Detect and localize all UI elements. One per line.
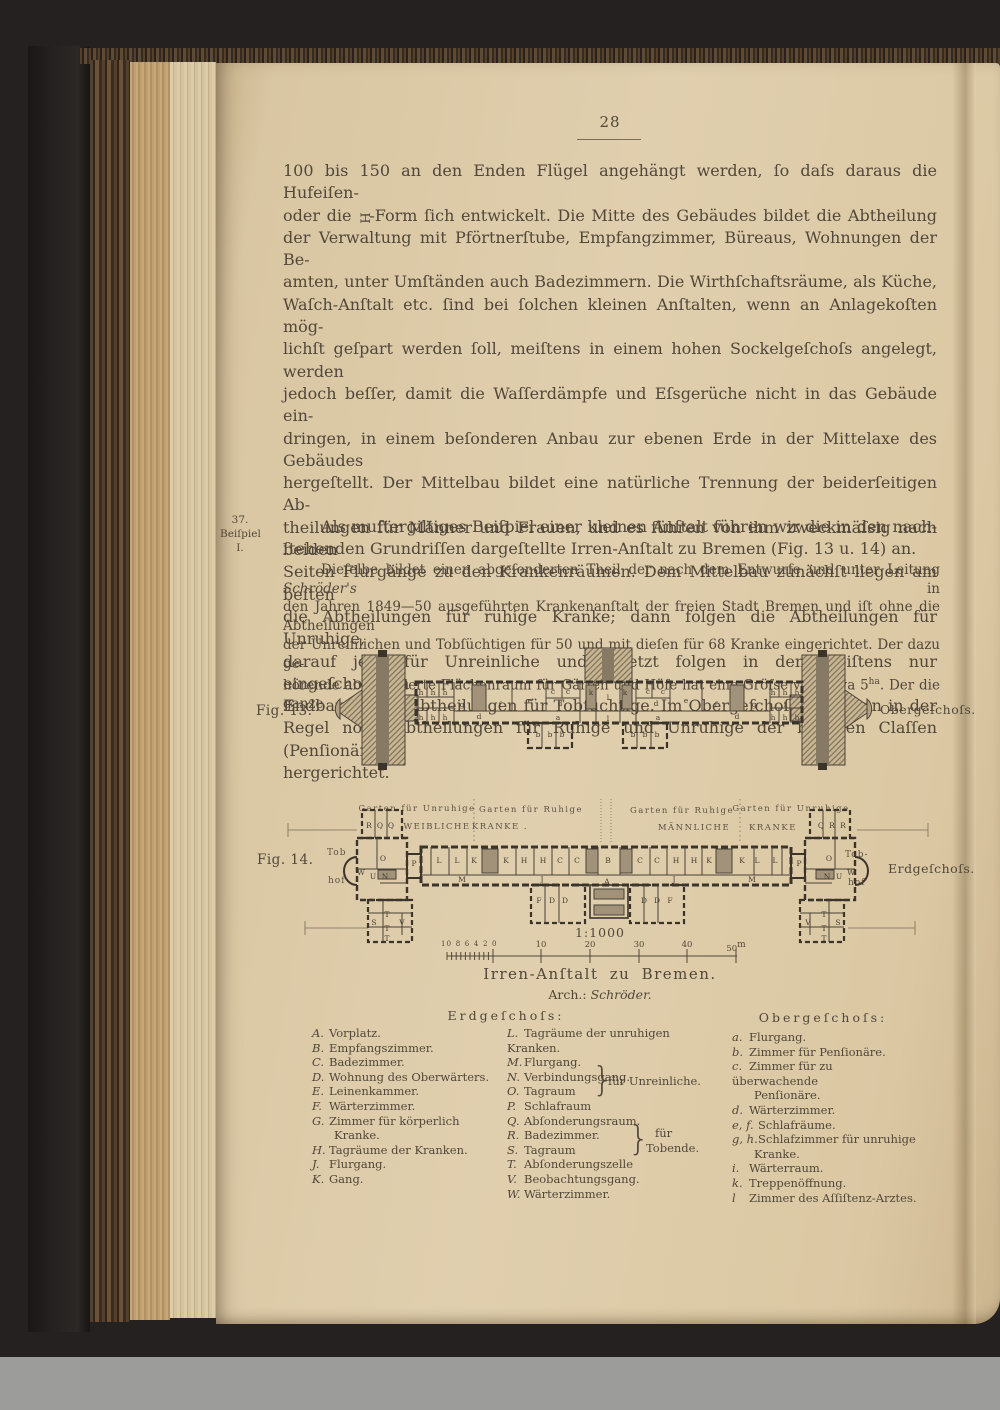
legend-item-text: Schlafräume. <box>758 1118 836 1132</box>
room-letter: K <box>503 856 509 865</box>
legend-item: V.Beobachtungsgang. <box>507 1172 717 1187</box>
book-spine-marbled <box>90 60 130 1322</box>
legend-item-text: Gang. <box>329 1172 363 1186</box>
room-letter: Q <box>818 821 824 830</box>
body-paragraph-2: Als muſtergiltiges Beiſpiel einer kleine… <box>283 516 937 561</box>
room-letter: T <box>384 924 389 933</box>
library-watermark-bar: UNIVERSITÄTS- BIBLIOTHEK PADERBORN <box>0 1357 1000 1410</box>
room-letter: l <box>607 714 610 723</box>
room-letter: R <box>840 821 846 830</box>
room-letter: J <box>539 875 543 884</box>
room-letter: K <box>706 856 712 865</box>
scale-ratio: 1:1000 <box>540 925 660 940</box>
legend-item-text: Wohnung des Oberwärters. <box>329 1070 489 1084</box>
legend-item-text: Leinenkammer. <box>329 1084 419 1098</box>
room-letter: T <box>821 910 826 919</box>
room-letter: R <box>829 821 835 830</box>
page-number-rule <box>577 139 641 140</box>
room-letter: T <box>384 910 389 919</box>
room-letter: W <box>847 868 855 877</box>
room-letter: c <box>566 687 570 696</box>
room-letter: P <box>411 859 416 868</box>
legend-item-key: G. <box>312 1114 329 1129</box>
legend-item: e, f.Schlafräume. <box>732 1118 922 1133</box>
legend-item-key: T. <box>507 1157 524 1172</box>
text-line: hergeſtellt. Der Mittelbau bildet eine n… <box>283 472 937 517</box>
room-letter: f <box>499 700 503 709</box>
room-letter: K <box>471 856 477 865</box>
legend-item-key: d. <box>732 1103 749 1118</box>
room-letter: h <box>419 688 424 697</box>
legend-item-text: Zimmer für Penſionäre. <box>749 1045 886 1059</box>
legend-item-key: e, f. <box>732 1118 758 1133</box>
room-letter: h <box>443 688 448 697</box>
legend-item-text: Treppenöffnung. <box>749 1176 846 1190</box>
room-letter: H <box>521 856 528 865</box>
text-span: in <box>357 581 940 597</box>
room-letter: h <box>771 713 776 722</box>
room-letter: c <box>646 687 650 696</box>
room-letter: V <box>398 918 405 927</box>
room-letter: F <box>667 896 672 905</box>
room-letter: l <box>607 693 610 702</box>
text-span: Dieſelbe bildet einen abgeſonderten Thei… <box>321 562 940 578</box>
legend-item: D.Wohnung des Oberwärters. <box>312 1070 502 1085</box>
room-letter: D <box>641 896 647 905</box>
margin-note-line: I. <box>220 542 260 556</box>
room-letter: h <box>795 713 800 722</box>
room-letter: D <box>562 896 568 905</box>
text-span: -Form ſich entwickelt. Die Mitte des Geb… <box>369 206 937 225</box>
legend-item-text: Badezimmer. <box>329 1055 405 1069</box>
legend-item-text: Badezimmer. <box>524 1128 600 1142</box>
legend-item-key: K. <box>312 1172 329 1187</box>
margin-note-line: 37. <box>220 514 260 528</box>
page-stack-edge <box>170 62 216 1318</box>
legend-item: Q.Abſonderungsraum. <box>507 1114 717 1129</box>
room-letter: T <box>821 924 826 933</box>
room-letter: h <box>771 688 776 697</box>
legend-item: G.Zimmer für körperlich <box>312 1114 502 1129</box>
legend-item: c.Zimmer für zu überwachende <box>732 1059 922 1088</box>
text-line: oder die H-Form ſich entwickelt. Die Mit… <box>283 205 937 227</box>
room-letter: d <box>735 712 740 721</box>
legend-brace-label-tobende: Tobende. <box>646 1141 699 1155</box>
margin-note: 37. Beiſpiel I. <box>220 514 260 555</box>
room-letter: b <box>655 730 660 739</box>
arch-name: Schröder. <box>591 987 652 1002</box>
legend-item-key: S. <box>507 1143 524 1158</box>
legend-item: d.Wärterzimmer. <box>732 1103 922 1118</box>
legend-item: i.Wärterraum. <box>732 1161 922 1176</box>
legend-column-erdgeschoss-1: A.Vorplatz.B.Empfangszimmer.C.Badezimmer… <box>312 1026 502 1187</box>
room-letter: e <box>684 696 689 705</box>
room-letter: B <box>605 856 611 865</box>
room-letter: Q <box>377 821 383 830</box>
room-letter: b <box>536 730 541 739</box>
room-letter: A <box>603 877 610 886</box>
room-letter: L <box>437 856 442 865</box>
legend-item-text: Flurgang. <box>329 1157 386 1171</box>
legend-item: J.Flurgang. <box>312 1157 502 1172</box>
room-letter: f <box>715 700 719 709</box>
room-letter: g <box>460 700 465 709</box>
h-form-symbol: H <box>359 212 369 223</box>
legend-item-key: H. <box>312 1143 329 1158</box>
book-cover-edge <box>28 46 90 1332</box>
room-letter: N <box>382 872 389 881</box>
room-letter: h <box>431 688 436 697</box>
legend-item-text: Schlafraum <box>524 1099 591 1113</box>
room-letter: C <box>557 856 563 865</box>
room-letter: a <box>556 713 561 722</box>
legend-item: lZimmer des Aſſiſtenz-Arztes. <box>732 1191 922 1206</box>
room-letter: K <box>739 856 745 865</box>
margin-note-line: Beiſpiel <box>220 528 260 542</box>
legend-item-text: Abſonderungsraum. <box>524 1114 640 1128</box>
room-letter: d <box>558 699 563 708</box>
legend-item-text: Tagräume der unruhigen Kranken. <box>507 1026 670 1055</box>
legend-item: F.Wärterzimmer. <box>312 1099 502 1114</box>
text-line: Waſch-Anſtalt etc. ſind bei ſolchen klei… <box>283 294 937 339</box>
room-letter: M <box>458 875 466 884</box>
scale-minor-labels: 10 8 6 4 2 0 <box>441 940 498 948</box>
legend-item-key: J. <box>312 1157 329 1172</box>
legend-item-key: B. <box>312 1041 329 1056</box>
text-line: ſtehenden Grundriſſen dargeſtellte Irren… <box>283 538 937 560</box>
legend-item-key: g, h. <box>732 1132 758 1147</box>
legend-item-key: b. <box>732 1045 749 1060</box>
legend-item-text: Empfangszimmer. <box>329 1041 434 1055</box>
legend-item-key: N. <box>507 1070 524 1085</box>
room-letter: S <box>835 918 840 927</box>
room-letter: M <box>748 875 756 884</box>
room-letter: U <box>836 872 842 881</box>
room-letter: h <box>783 688 788 697</box>
room-letter: L <box>755 856 760 865</box>
room-letter: d <box>654 699 659 708</box>
legend-item: W.Wärterzimmer. <box>507 1187 717 1202</box>
legend-item-text-line2: Penſionäre. <box>732 1088 922 1103</box>
room-letter: g <box>752 700 757 709</box>
room-letter: k <box>589 688 594 697</box>
legend-item: K.Gang. <box>312 1172 502 1187</box>
room-letter: Q <box>388 821 394 830</box>
legend-brace-label-fuer: für <box>655 1126 672 1140</box>
text-line: lichſt geſpart werden ſoll, meiſtens in … <box>283 338 937 383</box>
legend-item: L.Tagräume der unruhigen Kranken. <box>507 1026 717 1055</box>
legend-item-text-line2: Kranke. <box>312 1128 502 1143</box>
room-letter: k <box>623 688 628 697</box>
room-letter: C <box>574 856 580 865</box>
legend-item-key: O. <box>507 1084 524 1099</box>
legend-item-text-line2: Kranke. <box>732 1147 922 1162</box>
legend-item: g, h.Schlafzimmer für unruhige <box>732 1132 922 1147</box>
legend-item: E.Leinenkammer. <box>312 1084 502 1099</box>
room-letter: N <box>824 872 831 881</box>
room-letter: D <box>654 896 660 905</box>
legend-item: B.Empfangszimmer. <box>312 1041 502 1056</box>
room-letter: V <box>804 918 811 927</box>
legend-item-text: Schlafzimmer für unruhige <box>758 1132 916 1146</box>
text-line: amten, unter Umſtänden auch Badezimmern.… <box>283 271 937 293</box>
room-letter: h <box>443 713 448 722</box>
room-letter: S <box>371 918 376 927</box>
text-line: 100 bis 150 an den Enden Flügel angehäng… <box>283 160 937 205</box>
figure-caption-architect: Arch.: Schröder. <box>450 987 750 1002</box>
room-letter: L <box>455 856 460 865</box>
room-letter: T <box>821 934 826 943</box>
room-letter: T <box>384 934 389 943</box>
legend-item-key: W. <box>507 1187 524 1202</box>
legend-header-obergeschoss: Obergeſchoſs: <box>738 1010 908 1025</box>
legend-header-erdgeschoss: Erdgeſchoſs: <box>421 1008 591 1023</box>
legend-item-text: Zimmer für körperlich <box>329 1114 460 1128</box>
legend-item: H.Tagräume der Kranken. <box>312 1143 502 1158</box>
text-line: den Jahren 1849—50 ausgeführten Krankena… <box>283 598 940 635</box>
room-letter: h <box>419 713 424 722</box>
text-span: oder die <box>283 206 358 225</box>
legend-item-text: Tagraum <box>524 1084 576 1098</box>
legend-column-erdgeschoss-2: L.Tagräume der unruhigen Kranken.M.Flurg… <box>507 1026 717 1201</box>
room-letter: P <box>796 859 801 868</box>
room-letter: b <box>631 730 636 739</box>
fig13-floorplan: hhhihhhgdfeccdaklklccdaefdgihhhhhhbbbbbb <box>250 645 960 780</box>
room-letter: R <box>366 821 372 830</box>
book-cover-top-edge <box>80 48 1000 64</box>
page-block-edge <box>130 62 170 1320</box>
room-letter: h <box>431 713 436 722</box>
room-letter: b <box>643 730 648 739</box>
legend-item-key: A. <box>312 1026 329 1041</box>
fig14-floorplan: RQQOWUNSTTVTPLLKKHHCCBCCHHKKLLPMJAJMNUQR… <box>250 795 970 945</box>
legend-item-key: k. <box>732 1176 749 1191</box>
legend-item: T.Abſonderungszelle <box>507 1157 717 1172</box>
legend-item-text: Flurgang. <box>749 1030 806 1044</box>
legend-item-key: L. <box>507 1026 524 1041</box>
legend-item-key: E. <box>312 1084 329 1099</box>
legend-item-key: Q. <box>507 1114 524 1129</box>
legend-item-text: Tagräume der Kranken. <box>329 1143 468 1157</box>
room-letter: h <box>783 713 788 722</box>
room-letter: H <box>673 856 680 865</box>
legend-column-obergeschoss: a.Flurgang.b.Zimmer für Penſionäre.c.Zim… <box>732 1030 922 1205</box>
room-letter: L <box>773 856 778 865</box>
scale-bar <box>440 948 745 964</box>
room-letter: H <box>540 856 547 865</box>
legend-item: P.Schlafraum <box>507 1099 717 1114</box>
room-letter: C <box>654 856 660 865</box>
scanned-book-photo: 28 37. Beiſpiel I. 100 bis 150 an den En… <box>0 0 1000 1410</box>
legend-item-text: Abſonderungszelle <box>524 1157 633 1171</box>
room-letter: c <box>551 687 555 696</box>
text-line: Dieſelbe bildet einen abgeſonderten Thei… <box>283 561 940 598</box>
legend-item: C.Badezimmer. <box>312 1055 502 1070</box>
legend-item-text: Wärterzimmer. <box>329 1099 415 1113</box>
legend-item: k.Treppenöffnung. <box>732 1176 922 1191</box>
room-letter: d <box>477 712 482 721</box>
text-line: dringen, in einem beſonderen Anbau zur e… <box>283 428 937 473</box>
room-letter: O <box>826 854 832 863</box>
text-line: Als muſtergiltiges Beiſpiel einer kleine… <box>283 516 937 538</box>
room-letter: b <box>560 730 565 739</box>
legend-item-key: a. <box>732 1030 749 1045</box>
arch-prefix: Arch.: <box>548 987 590 1002</box>
page-number: 28 <box>575 113 645 131</box>
legend-item-key: R. <box>507 1128 524 1143</box>
text-line: jedoch beſſer, damit die Waſſerdämpfe un… <box>283 383 937 428</box>
legend-item: b.Zimmer für Penſionäre. <box>732 1045 922 1060</box>
legend-item-text: Vorplatz. <box>329 1026 381 1040</box>
room-letter: c <box>661 687 665 696</box>
legend-item-key: C. <box>312 1055 329 1070</box>
room-letter: a <box>656 713 661 722</box>
figure-caption-title: Irren-Anſtalt zu Bremen. <box>450 965 750 983</box>
room-letter: C <box>637 856 643 865</box>
room-letter: W <box>357 868 365 877</box>
legend-item-key: D. <box>312 1070 329 1085</box>
legend-item-text: Wärterraum. <box>749 1161 823 1175</box>
legend-item-text: Flurgang. <box>524 1055 581 1069</box>
legend-item-text: Tagraum <box>524 1143 576 1157</box>
legend-item-text: Wärterzimmer. <box>749 1103 835 1117</box>
legend-item-key: M. <box>507 1055 524 1070</box>
legend-item-text: Wärterzimmer. <box>524 1187 610 1201</box>
legend-item: a.Flurgang. <box>732 1030 922 1045</box>
room-letter: H <box>691 856 698 865</box>
room-letter: U <box>370 872 376 881</box>
room-letter: D <box>549 896 555 905</box>
legend-item: A.Vorplatz. <box>312 1026 502 1041</box>
legend-brace-label-unreinliche: für Unreinliche. <box>608 1074 701 1088</box>
room-letter: b <box>548 730 553 739</box>
legend-item-text: Zimmer des Aſſiſtenz-Arztes. <box>749 1191 917 1205</box>
room-letter: O <box>380 854 386 863</box>
legend-item-key: c. <box>732 1059 749 1074</box>
architect-name: Schröder's <box>283 581 357 597</box>
text-line: der Verwaltung mit Pförtnerſtube, Empfan… <box>283 227 937 272</box>
legend-item-key: V. <box>507 1172 524 1187</box>
legend-item-key: F. <box>312 1099 329 1114</box>
room-letter: F <box>536 896 541 905</box>
room-letter: J <box>671 875 675 884</box>
room-letter: h <box>795 688 800 697</box>
legend-item-key: P. <box>507 1099 524 1114</box>
legend-item-key: l <box>732 1191 749 1206</box>
legend-item-key: i. <box>732 1161 749 1176</box>
legend-item-text: Beobachtungsgang. <box>524 1172 640 1186</box>
room-letter: e <box>528 696 533 705</box>
